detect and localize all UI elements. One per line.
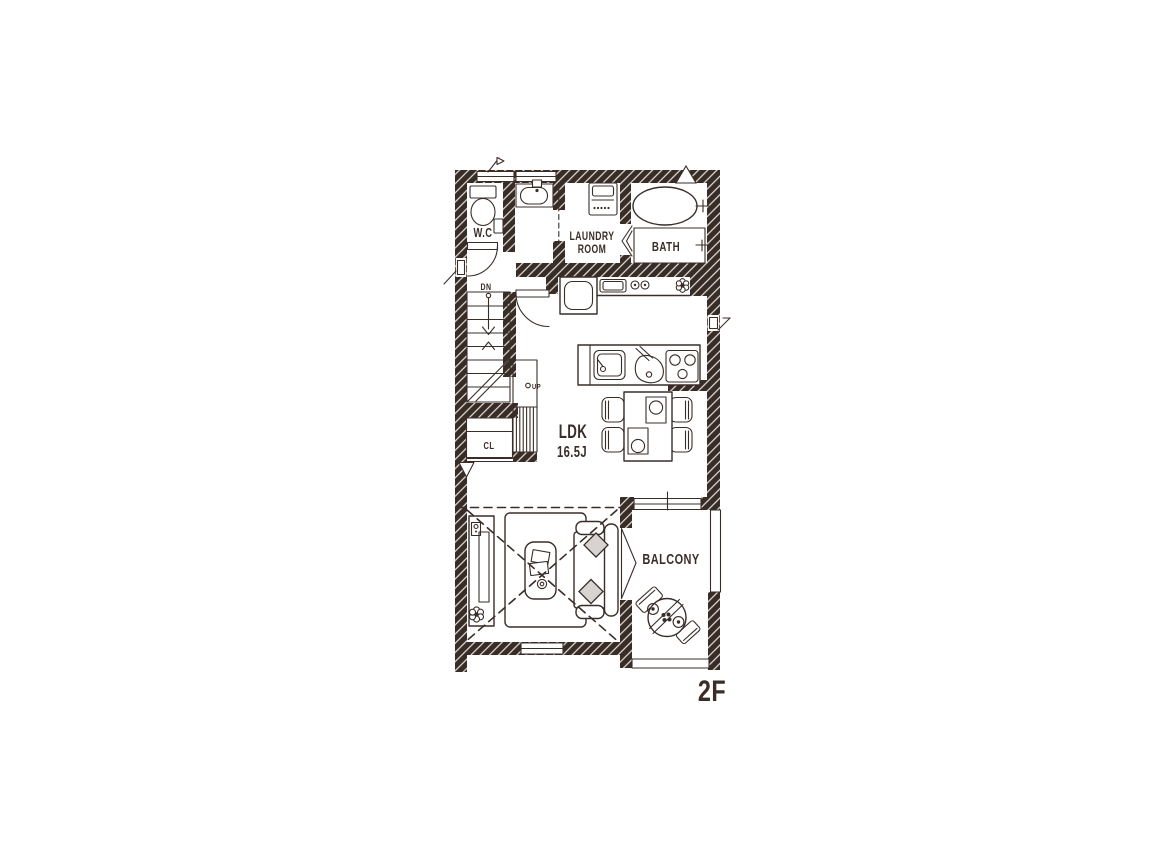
dining-chair	[670, 398, 692, 423]
stairs-down-label: DN	[480, 282, 491, 292]
tv-board-icon	[469, 516, 494, 626]
dining-chair	[670, 428, 692, 453]
wall-balcony-right-lower	[708, 592, 720, 670]
dining-chair	[602, 428, 624, 453]
wall-laundry-bath-upper	[620, 183, 631, 224]
plant-icon-tv	[470, 607, 484, 622]
wall-right	[707, 170, 720, 510]
balcony-set-icon	[635, 586, 701, 645]
window-living-bottom	[521, 643, 563, 654]
dining-chair	[602, 398, 624, 423]
washing-machine-icon	[589, 183, 617, 215]
wc-door-icon	[468, 243, 498, 277]
floor-plan-drawing: W.C LAUNDRY ROOM BATH DN UP CL LDK 16.5J…	[0, 0, 1150, 865]
bath-folding-door-icon	[622, 226, 632, 256]
window-balcony-top	[634, 492, 701, 510]
ldk-label-line1: LDK	[559, 422, 588, 443]
wall-counter-stub	[690, 275, 707, 296]
floor-label: 2F	[698, 674, 726, 707]
stairs-up-label: UP	[532, 383, 541, 391]
balcony-railing-bottom	[632, 659, 709, 668]
window-top-wc	[477, 172, 514, 182]
ldk-label-line2: 16.5J	[557, 442, 587, 461]
kitchen-back-counter	[597, 277, 690, 296]
kitchen-island-icon	[578, 345, 700, 385]
washbasin-icon	[516, 180, 553, 207]
wall-balcony-left-lower	[620, 600, 632, 668]
wall-under-stairs	[455, 403, 518, 418]
wall-left	[455, 170, 467, 672]
bath-label: BATH	[652, 241, 680, 255]
balcony-door-icon	[622, 529, 637, 599]
kitchen-door-icon	[516, 290, 549, 327]
bathtub-icon	[633, 187, 709, 225]
plant-icon-counter	[676, 279, 688, 293]
balcony-structure	[622, 492, 721, 668]
flag-mark	[488, 158, 504, 173]
dining-set-icon	[602, 392, 692, 461]
wall-wc-wash	[503, 183, 515, 252]
vent-right-wall	[708, 315, 730, 331]
wall-balcony-top-right	[701, 497, 720, 510]
balcony-railing-right	[711, 510, 721, 592]
floor-plan-page: W.C LAUNDRY ROOM BATH DN UP CL LDK 16.5J…	[0, 0, 1150, 865]
wall-wash-laundry-lower	[553, 241, 565, 263]
laundry-label-line2: ROOM	[578, 244, 607, 257]
laundry-label-line1: LAUNDRY	[570, 231, 615, 244]
wc-label: W.C	[473, 227, 492, 241]
wall-upstairs-cap	[513, 452, 537, 462]
wall-balcony-left-upper	[620, 497, 632, 528]
refrigerator-icon	[560, 277, 597, 314]
balcony-label: BALCONY	[642, 550, 699, 567]
wall-hall-stub	[546, 263, 558, 294]
sofa-icon	[574, 522, 618, 619]
closet-label: CL	[484, 440, 495, 451]
coffee-table-icon	[525, 542, 556, 599]
